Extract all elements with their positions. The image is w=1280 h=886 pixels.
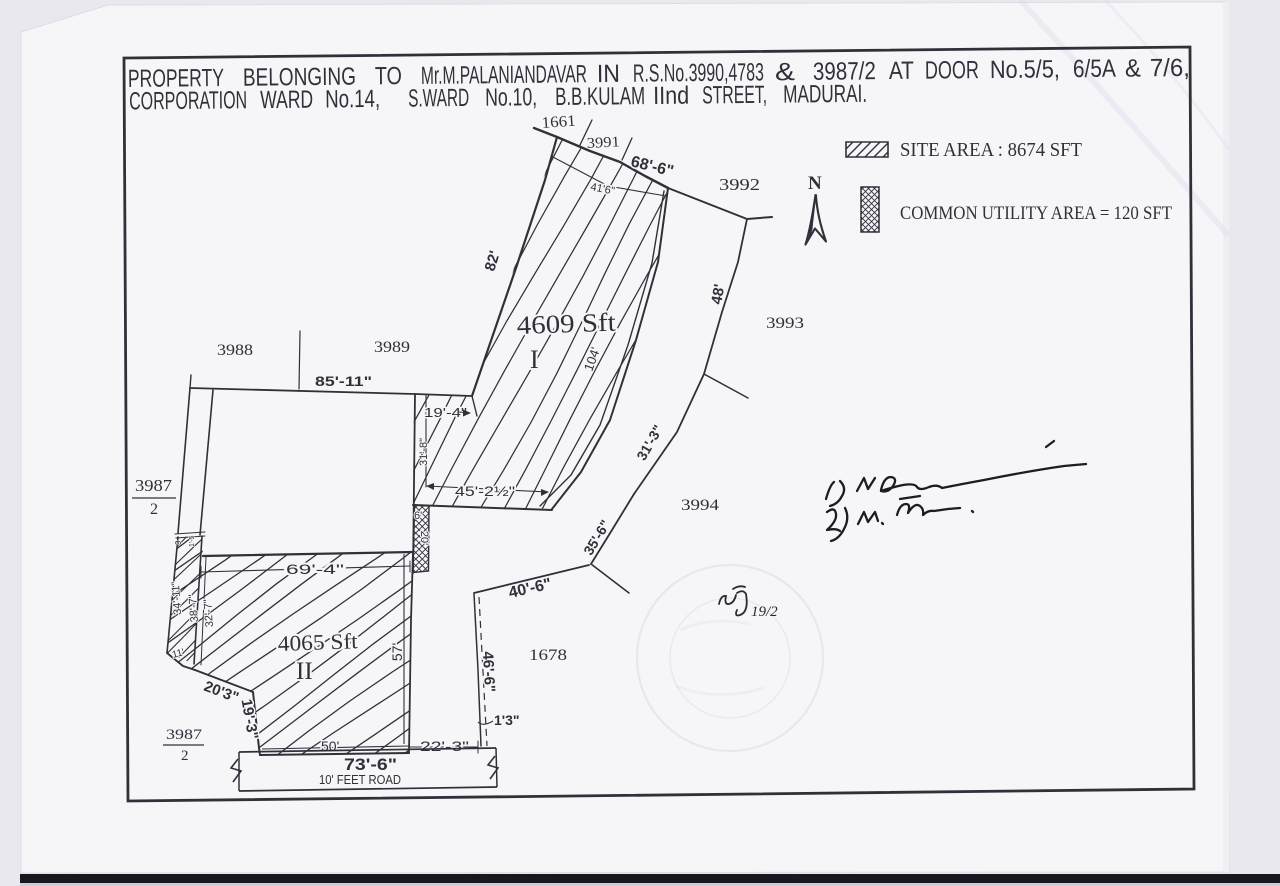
svg-text:3987: 3987 — [166, 727, 203, 743]
svg-text:1678: 1678 — [529, 647, 567, 664]
svg-text:46'-6": 46'-6" — [479, 651, 498, 693]
svg-text:I: I — [530, 345, 539, 374]
svg-text:3994: 3994 — [681, 497, 719, 514]
svg-text:9: 9 — [174, 540, 183, 545]
svg-text:4609 Sft: 4609 Sft — [516, 308, 617, 340]
svg-text:IInd: IInd — [653, 82, 689, 110]
svg-text:19/2: 19/2 — [751, 604, 778, 620]
svg-text:B.B.KULAM: B.B.KULAM — [555, 82, 645, 111]
svg-text:II: II — [296, 658, 313, 685]
svg-text:10' FEET ROAD: 10' FEET ROAD — [319, 772, 401, 787]
svg-text:48': 48' — [708, 283, 728, 306]
svg-text:S.WARD: S.WARD — [408, 84, 469, 113]
svg-text:3987: 3987 — [135, 476, 173, 495]
svg-text:31'-8": 31'-8" — [418, 438, 430, 466]
svg-text:3993: 3993 — [766, 315, 804, 332]
svg-text:50': 50' — [321, 738, 339, 754]
svg-text:WARD: WARD — [260, 86, 313, 115]
svg-text:85'-11": 85'-11" — [315, 373, 372, 389]
svg-text:45'-2½": 45'-2½" — [455, 483, 515, 499]
svg-text:4065 Sft: 4065 Sft — [277, 628, 358, 656]
svg-text:69'-4": 69'-4" — [286, 561, 344, 577]
svg-text:MADURAI.: MADURAI. — [783, 80, 867, 109]
svg-text:N: N — [808, 173, 822, 194]
svg-text:AT: AT — [889, 57, 914, 85]
svg-text:6': 6' — [414, 510, 422, 522]
svg-text:1'3": 1'3" — [494, 712, 520, 728]
svg-text:3989: 3989 — [374, 339, 410, 356]
svg-text:3992: 3992 — [719, 175, 760, 194]
svg-text:SITE AREA : 8674 SFT: SITE AREA : 8674 SFT — [900, 139, 1082, 161]
svg-text:No.5/5,: No.5/5, — [990, 55, 1060, 84]
svg-text:3988: 3988 — [217, 342, 253, 359]
svg-text:No.10,: No.10, — [485, 83, 537, 112]
svg-text:2: 2 — [150, 501, 158, 518]
svg-text:38'-7": 38'-7" — [187, 594, 201, 623]
svg-text:COMMON UTILITY AREA = 120 SFT: COMMON UTILITY AREA = 120 SFT — [900, 203, 1172, 224]
svg-text:1'-5: 1'-5 — [189, 535, 196, 547]
svg-text:No.14,: No.14, — [325, 85, 380, 114]
svg-text:DOOR: DOOR — [925, 56, 979, 85]
svg-text:32'-7": 32'-7" — [202, 599, 216, 628]
svg-text:7/6,: 7/6, — [1150, 54, 1190, 82]
svg-text:&: & — [1125, 54, 1142, 82]
svg-text:1661: 1661 — [541, 113, 576, 132]
svg-text:34'-11": 34'-11" — [170, 581, 184, 615]
svg-text:22'-3": 22'-3" — [420, 738, 469, 754]
svg-text:2: 2 — [181, 748, 189, 764]
svg-text:CORPORATION: CORPORATION — [129, 86, 247, 115]
svg-text:6/5A: 6/5A — [1073, 55, 1117, 83]
svg-text:20': 20' — [418, 531, 430, 545]
svg-text:57': 57' — [389, 643, 405, 661]
svg-text:3991: 3991 — [586, 134, 620, 152]
svg-text:STREET,: STREET, — [702, 81, 767, 110]
